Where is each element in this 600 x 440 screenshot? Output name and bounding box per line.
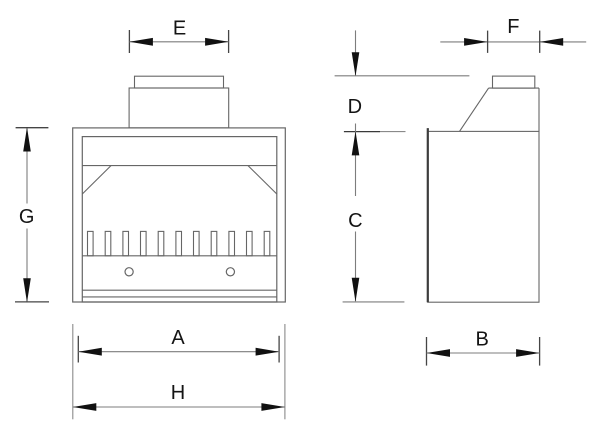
svg-text:A: A — [171, 327, 185, 349]
svg-text:G: G — [19, 206, 35, 228]
svg-text:E: E — [173, 17, 186, 39]
svg-text:D: D — [348, 96, 362, 118]
svg-text:F: F — [507, 16, 519, 38]
svg-text:C: C — [348, 210, 362, 232]
svg-text:H: H — [171, 382, 185, 404]
svg-text:B: B — [476, 329, 489, 351]
